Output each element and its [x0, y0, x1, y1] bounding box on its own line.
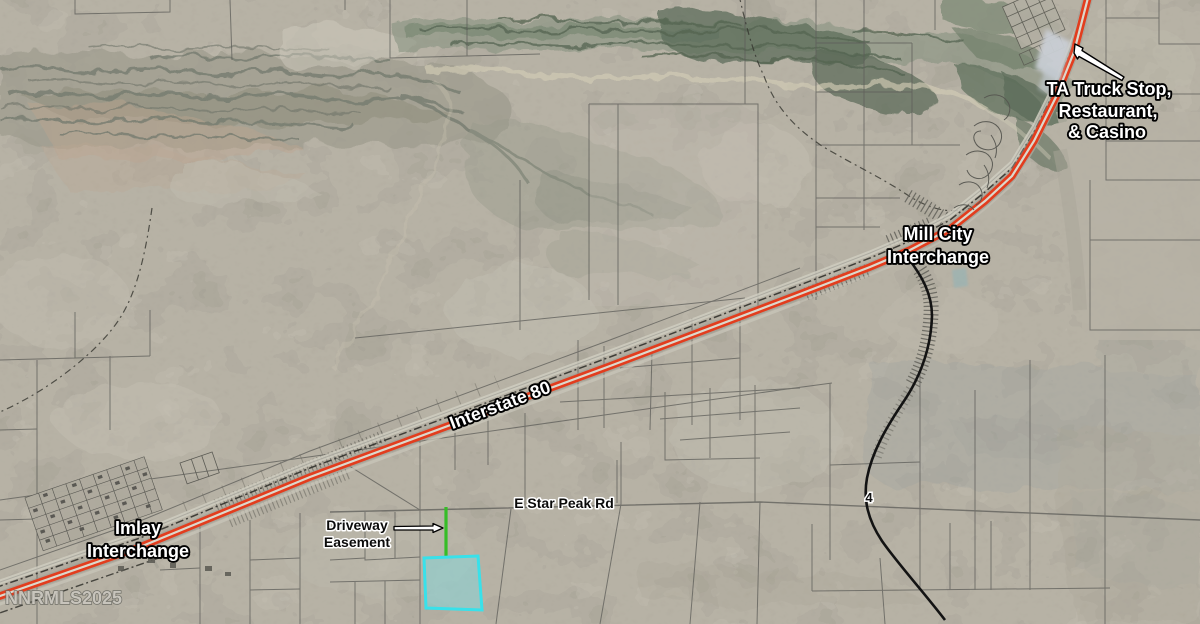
svg-text:NNRMLS2025: NNRMLS2025: [5, 588, 122, 608]
svg-text:TA Truck Stop,: TA Truck Stop,: [1046, 79, 1171, 99]
svg-text:Mill City: Mill City: [903, 224, 972, 244]
svg-text:E Star Peak Rd: E Star Peak Rd: [514, 495, 614, 511]
svg-text:Interchange: Interchange: [887, 247, 989, 267]
svg-text:4: 4: [865, 490, 873, 505]
svg-text:Easement: Easement: [324, 534, 390, 550]
svg-text:Imlay: Imlay: [115, 518, 161, 538]
svg-text:& Casino: & Casino: [1068, 122, 1146, 142]
svg-text:Interchange: Interchange: [87, 541, 189, 561]
svg-text:Driveway: Driveway: [326, 517, 388, 533]
svg-text:Restaurant,: Restaurant,: [1058, 101, 1157, 121]
